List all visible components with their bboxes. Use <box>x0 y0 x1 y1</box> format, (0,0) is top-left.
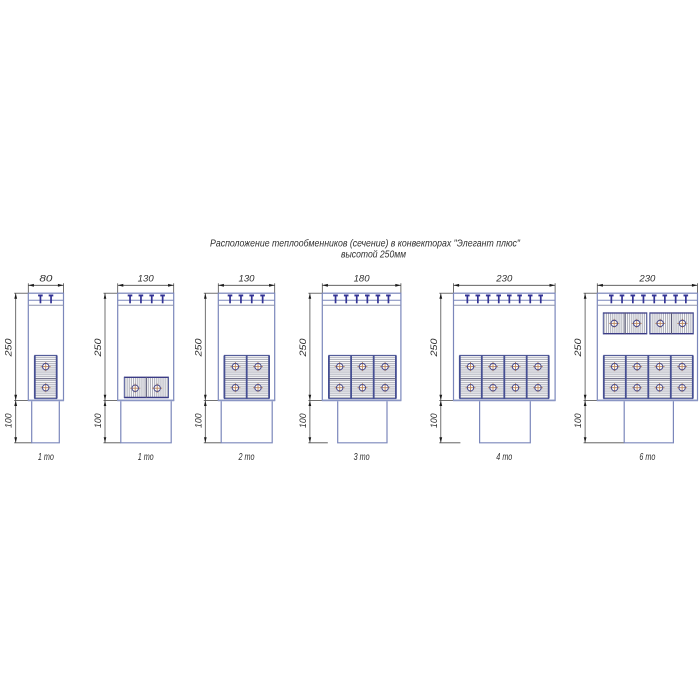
svg-text:250: 250 <box>193 339 203 358</box>
svg-text:3 то: 3 то <box>354 452 370 463</box>
svg-text:250: 250 <box>4 339 14 358</box>
svg-text:250: 250 <box>573 339 583 358</box>
svg-text:230: 230 <box>638 274 655 284</box>
svg-text:100: 100 <box>429 413 439 428</box>
svg-text:100: 100 <box>93 413 103 428</box>
svg-text:130: 130 <box>138 274 154 284</box>
svg-text:6 то: 6 то <box>639 452 655 463</box>
svg-text:80: 80 <box>39 274 52 284</box>
svg-text:высотой 250мм: высотой 250мм <box>341 250 406 261</box>
svg-text:1 то: 1 то <box>138 452 154 463</box>
svg-text:1 то: 1 то <box>38 452 54 463</box>
svg-text:4 то: 4 то <box>496 452 512 463</box>
svg-text:100: 100 <box>573 413 583 428</box>
svg-text:130: 130 <box>239 274 255 284</box>
svg-text:250: 250 <box>93 339 103 358</box>
svg-text:100: 100 <box>298 413 308 428</box>
svg-text:100: 100 <box>4 413 14 428</box>
svg-text:250: 250 <box>429 339 439 358</box>
svg-text:230: 230 <box>495 274 512 284</box>
svg-text:250: 250 <box>298 339 308 358</box>
svg-text:2 то: 2 то <box>238 452 255 463</box>
svg-text:Расположение теплообменников (: Расположение теплообменников (сечение) в… <box>210 238 520 250</box>
svg-text:180: 180 <box>354 274 370 284</box>
svg-text:100: 100 <box>193 413 203 428</box>
